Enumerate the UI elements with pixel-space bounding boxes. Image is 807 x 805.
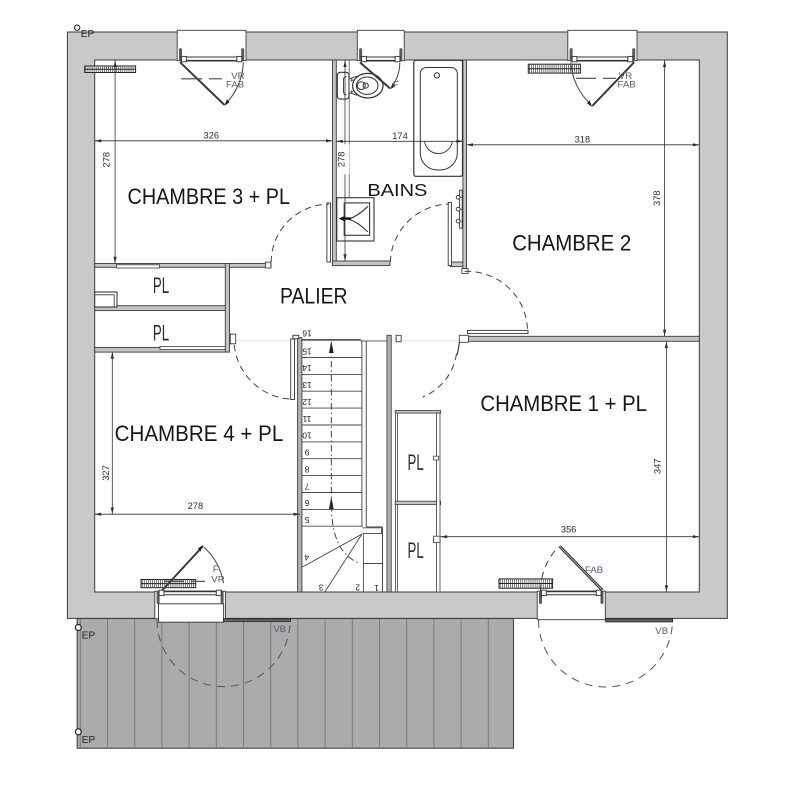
svg-text:6: 6	[304, 498, 309, 508]
svg-text:9: 9	[304, 448, 309, 458]
svg-text:174: 174	[392, 131, 408, 141]
svg-text:PL: PL	[408, 450, 424, 475]
svg-text:11: 11	[302, 414, 311, 424]
svg-text:F: F	[393, 80, 399, 91]
svg-text:VB: VB	[655, 626, 668, 637]
svg-text:16: 16	[302, 329, 312, 339]
svg-text:12: 12	[302, 397, 312, 407]
svg-text:CHAMBRE 2: CHAMBRE 2	[512, 231, 631, 256]
svg-text:327: 327	[101, 465, 111, 481]
svg-text:278: 278	[101, 152, 111, 168]
svg-text:PL: PL	[153, 273, 169, 298]
svg-text:EP: EP	[82, 735, 96, 746]
svg-text:7: 7	[304, 481, 309, 491]
svg-text:1: 1	[374, 583, 379, 593]
svg-text:CHAMBRE 1 + PL: CHAMBRE 1 + PL	[480, 391, 647, 416]
svg-text:3: 3	[319, 583, 324, 593]
svg-text:13: 13	[302, 380, 312, 390]
svg-text:278: 278	[336, 152, 346, 168]
svg-text:318: 318	[575, 135, 591, 145]
svg-text:378: 378	[652, 190, 662, 206]
svg-text:PALIER: PALIER	[280, 283, 348, 308]
svg-text:FAB: FAB	[585, 565, 603, 576]
svg-text:8: 8	[304, 464, 309, 474]
svg-text:EP: EP	[81, 29, 95, 40]
svg-text:VR: VR	[211, 575, 224, 586]
svg-text:4: 4	[304, 553, 309, 563]
svg-text:VB: VB	[273, 624, 286, 635]
svg-text:15: 15	[302, 346, 312, 356]
svg-text:10: 10	[302, 431, 312, 441]
svg-text:PL: PL	[153, 320, 169, 345]
svg-text:347: 347	[652, 459, 662, 475]
svg-text:356: 356	[561, 524, 577, 534]
svg-text:CHAMBRE 3 + PL: CHAMBRE 3 + PL	[128, 184, 291, 209]
svg-text:5: 5	[304, 515, 309, 525]
svg-text:F: F	[213, 564, 219, 575]
svg-text:2: 2	[355, 583, 360, 593]
svg-text:FAB: FAB	[618, 79, 636, 90]
svg-text:PL: PL	[408, 538, 424, 563]
svg-text:14: 14	[302, 363, 312, 373]
svg-text:FAB: FAB	[226, 80, 244, 91]
svg-text:BAINS: BAINS	[367, 180, 427, 200]
svg-text:326: 326	[204, 131, 220, 141]
svg-text:CHAMBRE 4 + PL: CHAMBRE 4 + PL	[115, 421, 284, 446]
svg-text:EP: EP	[82, 631, 96, 642]
svg-text:278: 278	[188, 501, 204, 511]
